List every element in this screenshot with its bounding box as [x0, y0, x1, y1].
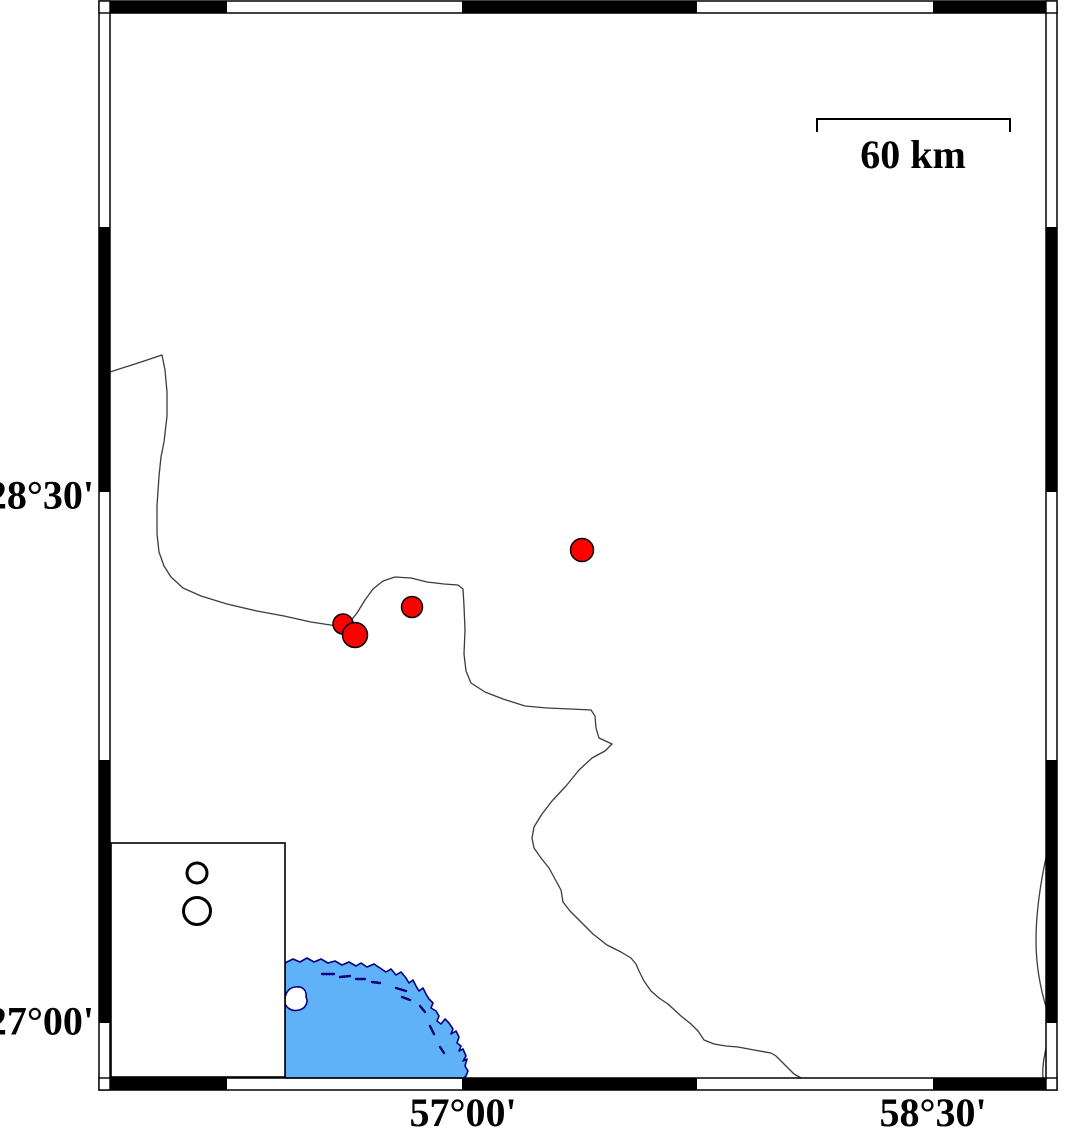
longitude-label: 58°30' — [879, 1093, 986, 1128]
frame-tick-top — [933, 1, 1046, 13]
islet-dash — [340, 976, 350, 977]
epicenter-symbol — [402, 597, 423, 618]
epicenter-symbol — [343, 623, 368, 648]
frame-tick-bottom — [933, 1078, 1046, 1090]
legend-magnitude-symbol — [184, 898, 211, 925]
islet-dash — [372, 982, 380, 983]
frame-tick-top — [462, 1, 697, 13]
latitude-label: 28°30' — [0, 475, 94, 515]
frame-tick-left — [99, 760, 110, 1023]
legend-magnitude-symbol — [187, 863, 207, 883]
frame-tick-right — [1046, 227, 1057, 492]
frame-corner-square — [99, 1, 110, 13]
scale-bar-label: 60 km — [860, 135, 966, 175]
frame-tick-right — [1046, 760, 1057, 1023]
frame-corner-square — [99, 1078, 110, 1090]
longitude-label: 57°00' — [409, 1093, 516, 1128]
frame-tick-bottom — [462, 1078, 697, 1090]
sea-polygon — [285, 958, 468, 1078]
frame-tick-bottom — [110, 1078, 227, 1090]
frame-tick-top — [110, 1, 227, 13]
map-canvas: 28°30'27°00'57°00'58°30' 60 km — [0, 0, 1066, 1128]
scale-bar-bracket — [817, 119, 1010, 132]
frame-corner-square — [1046, 1078, 1057, 1090]
frame-tick-left — [99, 227, 110, 492]
frame-corner-square — [1046, 1, 1057, 13]
latitude-label: 27°00' — [0, 1001, 94, 1041]
island-outline — [285, 987, 307, 1011]
epicenter-symbol — [571, 539, 594, 562]
